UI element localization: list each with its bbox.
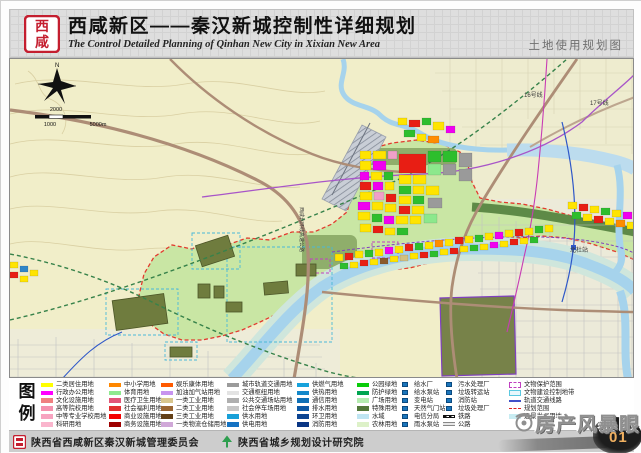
land-use-block [340,263,348,269]
land-use-block [399,186,411,194]
legend-item: 公园绿地 [357,381,397,389]
land-use-block [360,192,372,200]
legend-item: 水域 [357,413,397,421]
land-use-block [426,186,439,195]
legend-swatch-fill [161,406,173,411]
legend-label: 防护绿地 [372,389,397,396]
legend-swatch-fill [41,391,53,396]
legend-swatch-rail [443,415,455,418]
land-use-block [465,236,473,243]
land-use-block [495,232,503,239]
legend-swatch-fill [109,414,121,419]
legend-item: 给水泵站 [399,389,445,397]
land-use-block [424,214,437,223]
land-use-block [627,222,634,229]
map-label: 16号线 [524,91,543,99]
page: 西 咸 西咸新区——秦汉新城控制性详细规划 The Control Detail… [0,0,641,453]
legend-item: 一类工业用地 [161,397,226,405]
legend-label: 广场用地 [372,397,397,404]
land-use-block [372,214,382,222]
legend-item: 供燃气用地 [297,381,343,389]
legend-item: 中小学用地 [109,381,162,389]
legend-swatch-fill [227,414,239,419]
land-use-block [360,151,371,159]
legend-item: 二类工业用地 [161,405,226,413]
legend-column-5: 公园绿地防护绿地广场用地特殊用地水域农林用地 [357,381,397,428]
land-use-block [535,226,543,233]
land-use-block [415,243,423,250]
legend-label: 垃圾处理厂 [458,405,489,412]
land-use-block [399,154,426,173]
legend-swatch-fill [227,406,239,411]
legend-swatch-fill [161,422,173,427]
mausoleum-patch [170,347,192,357]
land-use-block [623,212,632,219]
legend-label: 高等院校用地 [56,405,94,412]
page-title: 西咸新区——秦汉新城控制性详细规划 [68,16,633,38]
land-use-block [398,118,407,125]
land-use-block [397,228,408,235]
land-use-block [360,182,371,190]
land-use-block [422,118,431,125]
legend-label: 商务设施用地 [124,421,162,428]
legend-swatch-fill [109,398,121,403]
legend-label: 公路 [458,421,471,428]
land-use-block [430,251,438,257]
legend-label: 一类物流仓储用地 [176,421,226,428]
mausoleum-patch [226,302,242,312]
land-use-block [435,240,443,247]
legend-title: 图 例 [17,381,37,425]
legend-item: 供热用地 [297,389,343,397]
legend-label: 给水泵站 [414,389,439,396]
legend-item: 二类居住用地 [41,381,106,389]
land-use-block [10,262,18,268]
land-use-block [420,252,428,258]
land-use-block [446,126,455,133]
institute-logo-icon [221,435,233,448]
land-use-block [374,192,384,200]
svg-text:咸: 咸 [35,34,49,50]
page-number: 01 [609,429,628,446]
legend-item: 排水用地 [297,405,343,413]
land-use-block [500,241,508,247]
legend-item: 规划范围 [509,405,574,413]
land-use-block [370,259,378,265]
legend-swatch-fill [357,398,369,403]
legend-item: 环卫用地 [297,413,343,421]
legend-item: 社会福利用地 [109,405,162,413]
land-use-block [360,224,371,232]
legend-label: 通信用地 [312,397,337,404]
legend-label: 体育用地 [124,389,149,396]
legend-swatch-icon [446,390,452,395]
land-use-block [375,249,383,256]
legend-label: 雨水泵站 [414,421,439,428]
land-use-block [510,239,518,245]
legend-swatch-fill [227,422,239,427]
legend-label: 行政办公用地 [56,389,94,396]
legend-swatch-fill [161,398,173,403]
legend-item: 电信分局 [399,413,445,421]
legend-swatch-fill [297,422,309,427]
header: 西 咸 西咸新区——秦汉新城控制性详细规划 The Control Detail… [9,9,634,58]
legend-swatch-fill [227,391,239,396]
legend-item: 供电用地 [227,420,292,428]
land-use-block [413,186,424,194]
land-use-block [355,251,363,258]
legend-item: 文化设施用地 [41,397,106,405]
legend-item: 行政办公用地 [41,389,106,397]
legend-item: 城市轨道交通用地 [227,381,292,389]
land-use-block [601,208,610,215]
legend-item: 远景发展用地 [509,413,574,421]
legend-item: 雨水泵站 [399,420,445,428]
legend-label: 中小学用地 [124,381,155,388]
land-use-block [380,258,388,264]
legend-label: 商业设施用地 [124,413,162,420]
map-label: 西咸北环线高速公路 [298,207,305,252]
legend-swatch-fill [297,414,309,419]
legend-column-7: 污水处理厂垃圾转运站消防站垃圾处理厂铁路公路 [443,381,489,428]
legend-swatch-fill [41,383,53,388]
legend-label: 二类工业用地 [176,405,214,412]
scale-label: 1000 [44,122,56,128]
legend-swatch-dashrect [509,382,521,388]
legend-swatch-reddash [509,408,521,409]
map-canvas: N 200010005000m 16号线17号线北杜站西咸北环线高速公路 [10,59,634,378]
legend-label: 电信分局 [414,413,439,420]
legend-item: 供水用地 [227,413,292,421]
legend-item: 体育用地 [109,389,162,397]
land-use-block [417,134,426,141]
land-use-block [594,216,603,223]
legend-item: 广场用地 [357,397,397,405]
legend-column-0: 二类居住用地行政办公用地文化设施用地高等院校用地中等专业学校用地科研用地 [41,381,106,428]
legend-label: 给水厂 [414,381,433,388]
land-use-block [373,182,383,190]
land-use-block [384,216,394,224]
land-use-block [20,276,28,282]
legend-label: 变电站 [414,397,433,404]
legend: 图 例 二类居住用地行政办公用地文化设施用地高等院校用地中等专业学校用地科研用地… [9,378,634,430]
legend-item: 给水厂 [399,381,445,389]
legend-column-1: 中小学用地体育用地医疗卫生用地社会福利用地商业设施用地商务设施用地 [109,381,162,428]
legend-item: 科研用地 [41,420,106,428]
mausoleum-patch [198,284,210,298]
land-use-block [480,244,488,250]
land-use-block [475,235,483,242]
land-use-block [385,182,394,190]
land-use-block [590,206,599,213]
land-use-block [579,204,588,211]
legend-item: 一类物流仓储用地 [161,420,226,428]
legend-swatch-cyanrect [509,390,521,396]
land-use-block [410,216,421,224]
legend-item: 中等专业学校用地 [41,413,106,421]
land-use-block [525,228,533,235]
legend-item: 消防用地 [297,420,343,428]
legend-column-2: 娱乐康体用地加油加气站用地一类工业用地二类工业用地三类工业用地一类物流仓储用地 [161,381,226,428]
land-use-block [404,130,415,137]
legend-swatch-line [509,400,521,402]
mausoleum-patch [214,286,224,298]
land-use-block [360,260,368,266]
legend-swatch-fill [297,406,309,411]
legend-item: 天然气门站 [399,405,445,413]
land-use-block [428,136,439,143]
legend-label: 文化设施用地 [56,397,94,404]
land-use-block [455,237,463,244]
land-use-block [384,172,393,180]
land-use-block [410,253,418,259]
legend-label: 一类工业用地 [176,397,214,404]
svg-text:N: N [55,63,59,69]
land-use-block [399,175,411,184]
land-use-block [371,172,382,180]
legend-swatch-icon [402,422,408,427]
legend-label: 供燃气用地 [312,381,343,388]
legend-item: 公共交通场站用地 [227,397,292,405]
land-use-block [445,239,453,246]
legend-label: 铁路 [458,413,471,420]
legend-item: 社会停车场用地 [227,405,292,413]
legend-item: 公路 [443,420,489,428]
legend-label: 轨道交通线路 [524,397,562,404]
land-use-block [373,226,383,233]
scale-label: 5000m [90,122,107,128]
footer-org2: 陕西省城乡规划设计研究院 [238,434,364,449]
mausoleum-patch [296,264,316,276]
legend-item: 医疗卫生用地 [109,397,162,405]
legend-item: 农林用地 [357,420,397,428]
land-use-block [443,164,456,175]
land-use-block [459,169,472,181]
legend-item: 交通枢纽用地 [227,389,292,397]
legend-item: 垃圾处理厂 [443,405,489,413]
legend-item: 商务设施用地 [109,420,162,428]
map-label: 17号线 [590,99,609,107]
legend-swatch-fill [357,422,369,427]
land-use-block [616,220,625,227]
legend-item: 娱乐康体用地 [161,381,226,389]
land-use-block [360,161,371,170]
land-use-block [520,238,528,244]
legend-swatch-fill [357,383,369,388]
land-use-block [390,256,398,262]
legend-column-6: 给水厂给水泵站变电站天然气门站电信分局雨水泵站 [399,381,445,428]
land-use-block [360,172,369,180]
legend-item: 消防站 [443,397,489,405]
legend-label: 规划范围 [524,405,549,412]
land-use-block [515,229,523,236]
land-use-block [388,151,397,159]
legend-item: 轨道交通线路 [509,397,574,405]
legend-label: 特殊用地 [372,405,397,412]
legend-item: 通信用地 [297,397,343,405]
land-use-block [459,153,472,167]
legend-label: 供电用地 [242,421,267,428]
committee-seal-icon [13,435,26,449]
land-use-block [428,151,441,162]
legend-swatch-fill [227,383,239,388]
land-use-block [335,254,343,261]
legend-swatch-fill [297,398,309,403]
land-use-block [572,212,581,219]
legend-label: 城市轨道交通用地 [242,381,292,388]
land-use-block [428,198,442,208]
legend-swatch-fill [357,406,369,411]
land-use-block [385,204,396,212]
land-use-block [409,120,420,127]
land-use-block [612,210,621,217]
legend-label: 中等专业学校用地 [56,413,106,420]
legend-item: 高等院校用地 [41,405,106,413]
legend-item: 加油加气站用地 [161,389,226,397]
legend-swatch-icon [446,406,452,411]
land-use-block [20,266,28,272]
legend-item: 商业设施用地 [109,413,162,421]
legend-item: 三类工业用地 [161,413,226,421]
land-use-block [372,202,383,210]
land-use-block [470,245,478,251]
legend-swatch-fill [109,391,121,396]
mausoleum-patch [264,281,289,295]
scale-label: 2000 [50,107,62,113]
land-use-block [545,225,553,232]
land-use-block [399,206,410,214]
legend-label: 消防用地 [312,421,337,428]
legend-label: 公共交通场站用地 [242,397,292,404]
land-use-block [605,218,614,225]
land-use-block [373,151,386,159]
legend-swatch-icon [402,382,408,387]
legend-label: 文物保护范围 [524,381,562,388]
land-use-block [460,246,468,252]
land-use-block [405,244,413,251]
land-use-block [385,228,395,235]
legend-label: 水域 [372,413,385,420]
land-use-block [30,270,38,276]
land-use-block [350,262,358,268]
legend-label: 社会福利用地 [124,405,162,412]
land-use-block [583,214,592,221]
land-use-block [400,255,408,261]
legend-label: 交通枢纽用地 [242,389,280,396]
legend-label: 垃圾转运站 [458,389,489,396]
land-use-block [485,233,493,240]
legend-label: 供水用地 [242,413,267,420]
legend-label: 文物建设控制地带 [524,389,574,396]
footer-org1: 陕西省西咸新区秦汉新城管理委员会 [31,434,199,449]
xixian-seal-logo: 西 咸 [24,15,60,53]
legend-swatch-road [443,422,455,426]
land-use-block [386,194,396,202]
land-use-block [396,216,408,224]
legend-label: 娱乐康体用地 [176,381,214,388]
legend-swatch-fill [161,414,173,419]
legend-item: 垃圾转运站 [443,389,489,397]
legend-label: 三类工业用地 [176,413,214,420]
legend-item: 文物建设控制地带 [509,389,574,397]
legend-label: 排水用地 [312,405,337,412]
legend-swatch-icon [446,382,452,387]
legend-swatch-fill [41,414,53,419]
land-use-block [530,237,538,243]
map-label: 北杜站 [570,246,588,254]
legend-swatch-icon [402,390,408,395]
land-use-block [345,253,353,260]
land-use-block [428,164,441,175]
land-use-block [373,161,386,170]
legend-swatch-fill [109,383,121,388]
legend-swatch-fill [357,391,369,396]
legend-swatch-icon [402,414,408,419]
land-use-block [358,202,370,210]
svg-text:西: 西 [35,18,49,34]
land-use-block [443,151,457,162]
land-use-block [568,202,577,209]
legend-swatch-fill [297,383,309,388]
legend-label: 医疗卫生用地 [124,397,162,404]
legend-item: 特殊用地 [357,405,397,413]
land-use-block [399,196,411,204]
legend-column-8: 文物保护范围文物建设控制地带轨道交通线路规划范围远景发展用地 [509,381,574,420]
land-use-block [395,246,403,253]
legend-label: 供热用地 [312,389,337,396]
legend-swatch-fill [41,422,53,427]
legend-label: 天然气门站 [414,405,445,412]
land-use-block [433,122,444,130]
legend-item: 污水处理厂 [443,381,489,389]
land-use-block [358,212,370,220]
legend-label: 消防站 [458,397,477,404]
legend-item: 防护绿地 [357,389,397,397]
land-use-block [450,248,458,254]
legend-swatch-fill [109,422,121,427]
legend-item: 文物保护范围 [509,381,574,389]
land-use-block [425,242,433,249]
legend-label: 二类居住用地 [56,381,94,388]
legend-item: 变电站 [399,397,445,405]
land-use-block [505,230,513,237]
land-use-block [412,206,424,214]
legend-swatch-fill [161,383,173,388]
legend-swatch-icon [402,406,408,411]
legend-item: 铁路 [443,413,489,421]
legend-label: 污水处理厂 [458,381,489,388]
legend-label: 社会停车场用地 [242,405,286,412]
land-use-block [10,272,18,278]
legend-swatch-fill [297,391,309,396]
land-use-block [413,196,424,204]
land-use-block [385,247,393,254]
legend-label: 环卫用地 [312,413,337,420]
legend-label: 远景发展用地 [524,413,562,420]
legend-label: 农林用地 [372,421,397,428]
land-use-block [440,249,448,255]
land-use-block [490,242,498,248]
land-use-map[interactable]: N 200010005000m 16号线17号线北杜站西咸北环线高速公路 [9,58,634,378]
legend-swatch-icon [402,398,408,403]
legend-column-4: 供燃气用地供热用地通信用地排水用地环卫用地消防用地 [297,381,343,428]
legend-swatch-fill [357,414,369,419]
legend-label: 科研用地 [56,421,81,428]
land-use-block [365,250,373,257]
legend-swatch-icon [446,398,452,403]
legend-label: 加油加气站用地 [176,389,220,396]
legend-swatch-fill [41,406,53,411]
